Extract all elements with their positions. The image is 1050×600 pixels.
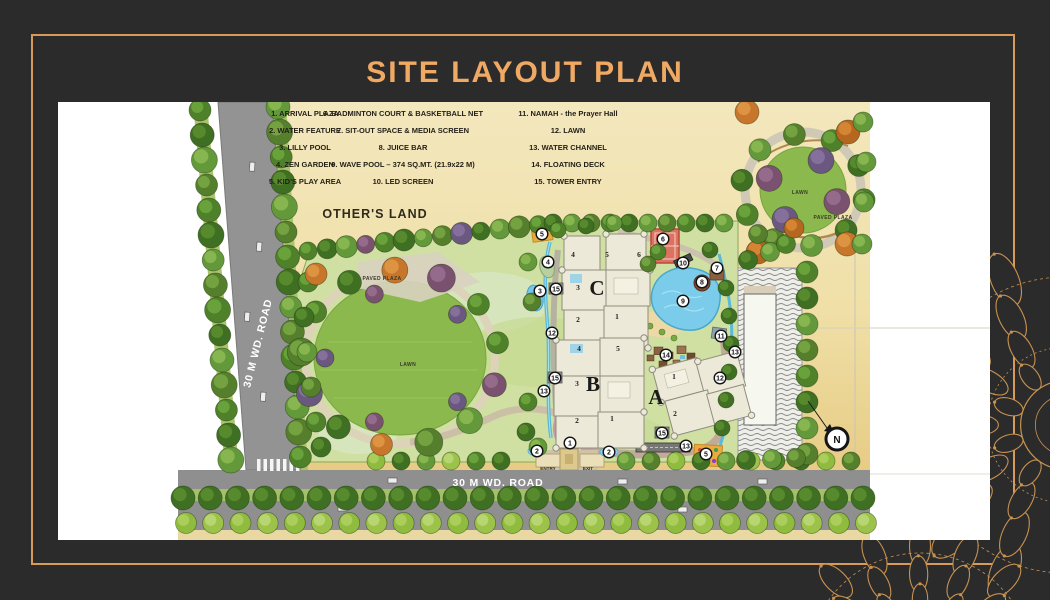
legend-item: 13. WATER CHANNEL [529,143,607,152]
site-plan-canvas: C456321B45321A121. ARRIVAL PLAZA2. WATER… [58,102,990,540]
svg-text:15: 15 [552,286,560,293]
legend-item: 2. WATER FEATURE [269,126,341,135]
plan-art: C456321B45321A121. ARRIVAL PLAZA2. WATER… [171,102,990,540]
legend-item: 6. BADMINTON COURT & BASKETBALL NET [323,109,484,118]
tower-A-unit-2: 2 [673,409,677,418]
tower-A-unit-1: 1 [672,372,676,381]
legend-item: 8. JUICE BAR [379,143,428,152]
svg-text:5: 5 [704,451,708,458]
svg-text:13: 13 [540,388,548,395]
legend-item: 4. ZEN GARDEN [276,160,334,169]
tower-B-unit-5: 5 [616,344,620,353]
tower-B-unit-4: 4 [577,344,581,353]
svg-text:13: 13 [682,443,690,450]
svg-text:5: 5 [540,231,544,238]
tower-B-unit-3: 3 [575,379,579,388]
svg-text:14: 14 [662,352,670,359]
svg-text:15: 15 [658,430,666,437]
tower-B-unit-2: 2 [575,416,579,425]
others-land-label: OTHER'S LAND [322,207,427,221]
tower-C-unit-5: 5 [605,250,609,259]
tower-C-unit-3: 3 [576,283,580,292]
page-background: SITE LAYOUT PLAN C456321B45321A121. ARRI… [0,0,1050,600]
page-title: SITE LAYOUT PLAN [0,56,1050,90]
lawn-label-main: LAWN [400,362,416,368]
legend-item: 14. FLOATING DECK [531,160,605,169]
legend-item: 15. TOWER ENTRY [534,177,602,186]
lawn-label-ne: LAWN [792,190,808,196]
horizontal-road-label: 30 M WD. ROAD [453,477,544,489]
tower-letter-C: C [589,276,604,300]
svg-text:2: 2 [535,448,539,455]
site-plan-drawing: C456321B45321A121. ARRIVAL PLAZA2. WATER… [58,102,990,540]
paved-plaza-label-ne: PAVED PLAZA [814,215,853,221]
svg-text:15: 15 [551,375,559,382]
svg-text:12: 12 [548,330,556,337]
svg-text:4: 4 [546,259,550,266]
svg-text:10: 10 [679,260,687,267]
north-letter: N [833,435,840,446]
legend-item: 11. NAMAH - the Prayer Hall [518,109,617,118]
svg-text:8: 8 [700,279,704,286]
svg-text:1: 1 [568,440,572,447]
legend-item: 10. LED SCREEN [373,177,434,186]
svg-text:7: 7 [715,265,719,272]
legend-item: 9. WAVE POOL – 374 SQ.MT. (21.9x22 M) [331,160,475,169]
legend-item: 12. LAWN [551,126,586,135]
svg-text:3: 3 [538,288,542,295]
tower-B-unit-1: 1 [610,414,614,423]
svg-text:12: 12 [716,375,724,382]
paved-plaza-label-main: PAVED PLAZA [363,276,402,282]
svg-text:2: 2 [607,449,611,456]
legend-item: 3. LILLY POOL [279,143,331,152]
legend-item: 7. SIT-OUT SPACE & MEDIA SCREEN [337,126,469,135]
svg-text:9: 9 [681,298,685,305]
tower-letter-B: B [586,372,600,396]
entry-label: ENTRY [540,466,555,471]
svg-text:13: 13 [731,349,739,356]
svg-text:6: 6 [661,236,665,243]
tower-C-unit-4: 4 [571,250,575,259]
tower-letter-A: A [648,385,664,409]
tower-C-unit-6: 6 [637,250,641,259]
tower-C-unit-1: 1 [615,312,619,321]
svg-text:11: 11 [717,333,725,340]
tower-C-unit-2: 2 [576,315,580,324]
legend-item: 5. KID'S PLAY AREA [269,177,342,186]
exit-label: EXIT [583,466,593,471]
